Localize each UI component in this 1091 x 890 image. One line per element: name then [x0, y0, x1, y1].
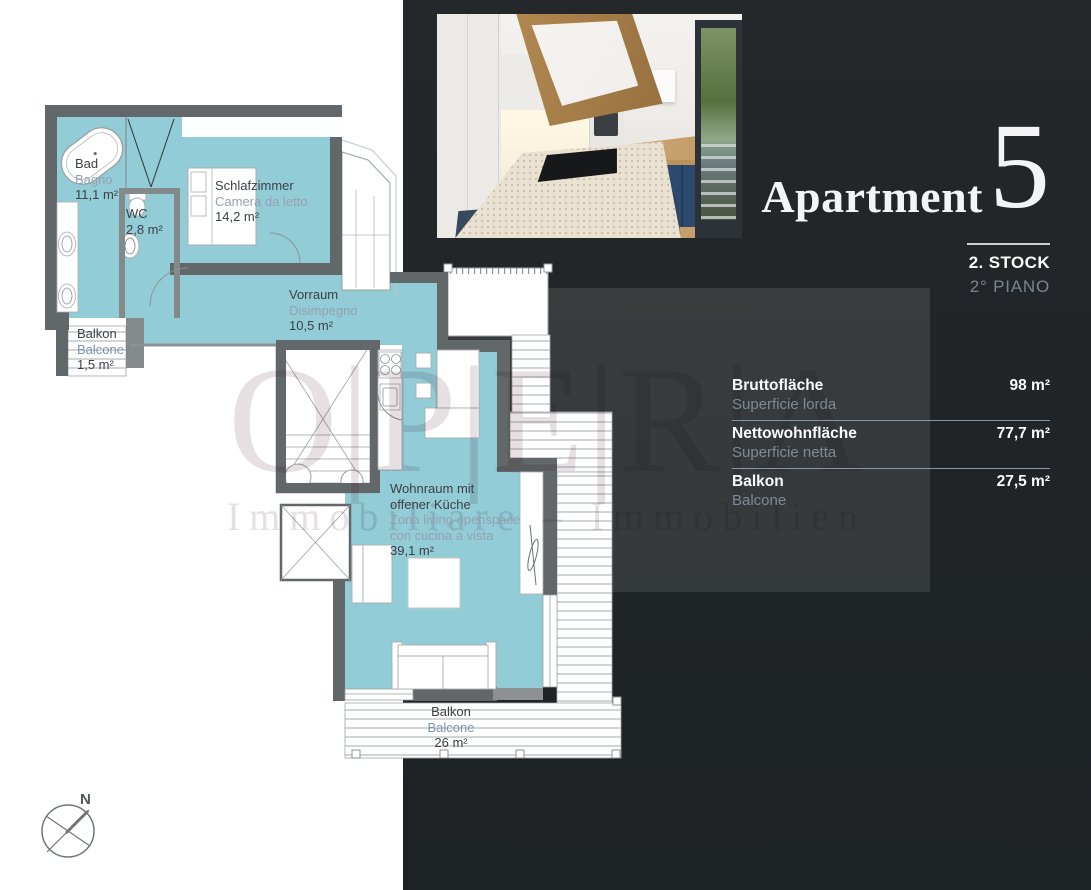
room-name-it: Balcone — [77, 342, 124, 358]
room-label-balkon-gross: Balkon Balcone 26 m² — [414, 704, 488, 751]
tv-board — [520, 472, 543, 594]
room-area: 2,8 m² — [126, 222, 163, 238]
room-label-wc: WC 2,8 m² — [126, 206, 163, 237]
room-name: WC — [126, 206, 163, 222]
room-area: 10,5 m² — [289, 318, 358, 334]
title-divider — [967, 243, 1050, 245]
floor-label-it: 2° PIANO — [970, 277, 1050, 297]
room-area: 1,5 m² — [77, 357, 124, 373]
room-name-it: Disimpegno — [289, 303, 358, 319]
armchair-icon — [352, 545, 392, 603]
room-name: Balkon — [77, 326, 124, 342]
page: O|P|E|R|A Immobiliare – Immobilien Bad B… — [0, 0, 1091, 890]
photo-balcony-railing — [701, 144, 736, 220]
detail-label-it: Balcone — [732, 491, 1050, 510]
detail-value: 77,7 m² — [997, 425, 1050, 443]
area-details-table: Bruttofläche Superficie lorda 98 m² Nett… — [732, 373, 1050, 516]
table-row: Bruttofläche Superficie lorda 98 m² — [732, 373, 1050, 420]
detail-label-de: Bruttofläche — [732, 376, 1050, 395]
room-label-vorraum: Vorraum Disimpegno 10,5 m² — [289, 287, 358, 334]
compass-north-label: N — [80, 791, 91, 808]
vanity-sinks — [57, 202, 78, 312]
apartment-photo — [437, 14, 742, 238]
sofa-icon — [392, 642, 496, 689]
wardrobe — [182, 117, 342, 137]
room-name: Vorraum — [289, 287, 358, 303]
room-label-wohnraum: Wohnraum mit offener Küche Zona living o… — [390, 481, 520, 559]
room-area: 14,2 m² — [215, 209, 308, 225]
elevator-icon — [281, 505, 350, 580]
table-row: Nettowohnfläche Superficie netta 77,7 m² — [732, 420, 1050, 468]
room-label-bad: Bad Bagno 11,1 m² — [75, 156, 118, 203]
table-row: Balkon Balcone 27,5 m² — [732, 468, 1050, 516]
room-name-it: Camera da letto — [215, 194, 308, 210]
room-area: 26 m² — [414, 735, 488, 751]
detail-value: 27,5 m² — [997, 473, 1050, 491]
room-name-it: Zona living openspace — [390, 512, 520, 528]
coffee-table-icon — [408, 558, 460, 608]
room-name: Bad — [75, 156, 118, 172]
apartment-number: 5 — [989, 106, 1050, 228]
room-name: offener Küche — [390, 497, 520, 513]
room-label-schlafzimmer: Schlafzimmer Camera da letto 14,2 m² — [215, 178, 308, 225]
detail-value: 98 m² — [1010, 377, 1051, 395]
room-label-balkon-klein: Balkon Balcone 1,5 m² — [77, 326, 124, 373]
detail-label-it: Superficie netta — [732, 443, 1050, 462]
floor-label-de: 2. STOCK — [969, 253, 1050, 273]
room-area: 11,1 m² — [75, 187, 118, 203]
room-name: Balkon — [414, 704, 488, 720]
room-name-it: Bagno — [75, 172, 118, 188]
compass-icon — [42, 805, 94, 857]
room-name: Schlafzimmer — [215, 178, 308, 194]
room-area: 39,1 m² — [390, 543, 520, 559]
room-name-it: Balcone — [414, 720, 488, 736]
room-name-it: con cucina a vista — [390, 528, 520, 544]
apartment-title: Apartment — [761, 174, 983, 220]
bay-window — [342, 140, 396, 296]
canopy — [444, 264, 552, 336]
room-name: Wohnraum mit — [390, 481, 520, 497]
detail-label-it: Superficie lorda — [732, 395, 1050, 414]
kitchen-island — [416, 350, 479, 438]
kitchen-counter — [378, 350, 402, 470]
